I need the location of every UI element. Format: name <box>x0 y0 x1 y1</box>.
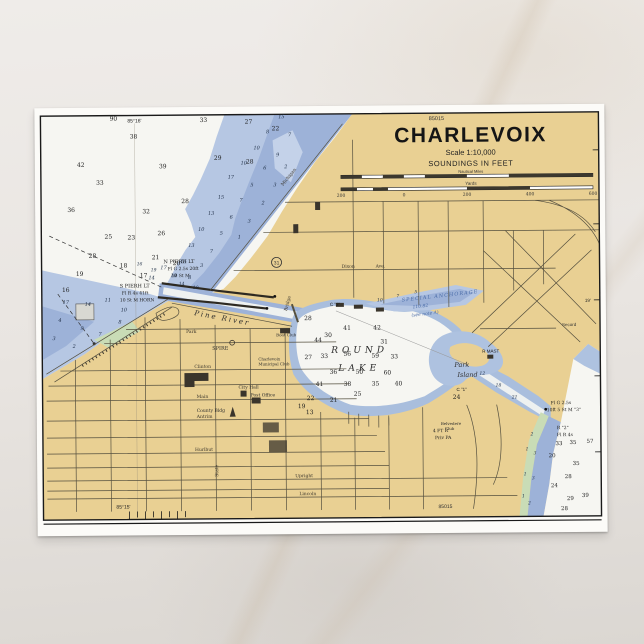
sounding-value: 16 <box>62 287 70 294</box>
sounding-value: 25 <box>354 391 362 398</box>
sounding-value: 2 <box>529 431 533 437</box>
street-state: State <box>214 464 220 476</box>
sounding-value: 33 <box>200 117 208 124</box>
sounding-value: 15 <box>278 114 284 120</box>
post-office-label: Post Office <box>251 392 276 398</box>
street-lincoln: Lincoln <box>299 491 316 497</box>
chart-number-top: 85015 <box>429 116 444 122</box>
street-dixon-ave: Ave. <box>375 263 386 269</box>
secord-label: Secord <box>562 322 577 327</box>
round-lake-label-1: ROUND <box>330 345 388 355</box>
miles-scalebar-label: Nautical Miles <box>458 169 483 174</box>
sounding-value: 36 <box>67 207 75 214</box>
sounding-value: 21 <box>330 397 338 404</box>
sounding-value: 10 <box>253 145 260 151</box>
sounding-value: 18 <box>496 383 502 389</box>
sounding-value: 22 <box>272 125 280 132</box>
park-island-label-2: Island <box>456 371 477 379</box>
sounding-value: 8 <box>118 320 121 326</box>
sounding-value: 16 <box>137 261 143 267</box>
svg-text:10ft 5 St M "3": 10ft 5 St M "3" <box>547 407 581 413</box>
sounding-value: 59 <box>371 353 379 360</box>
sounding-value: 41 <box>316 381 324 388</box>
belvedere-label-2: Club <box>445 426 455 431</box>
city-hall-label: City Hall <box>239 384 260 390</box>
sounding-value: 4 <box>57 318 61 324</box>
sounding-value: 11 <box>105 298 111 304</box>
sounding-value: 15 <box>218 195 224 201</box>
sounding-value: 33 <box>96 180 104 187</box>
sounding-value: 27 <box>304 354 312 361</box>
sounding-value: 28 <box>181 198 189 205</box>
svg-text:R "2": R "2" <box>557 425 569 431</box>
sounding-value: 60 <box>384 369 392 376</box>
product-photo-background: { "colors":{ "land":"#e9d093","water_lig… <box>0 0 644 644</box>
sounding-value: 15 <box>180 259 186 265</box>
spire-label: SPIRE <box>212 346 229 352</box>
municipal-label-2: Municipal Club <box>258 361 289 366</box>
street-main: Main <box>197 394 209 400</box>
sounding-value: 17 <box>160 265 167 271</box>
sounding-value: 39 <box>582 493 590 499</box>
svg-text:10 St M HORN: 10 St M HORN <box>120 297 155 303</box>
sounding-value: 21 <box>152 254 160 261</box>
svg-text:Fl R 4s 41ft: Fl R 4s 41ft <box>122 290 149 296</box>
sounding-value: 50 <box>356 369 364 376</box>
sounding-value: 33 <box>390 353 398 360</box>
sounding-value: 23 <box>128 234 136 241</box>
svg-text:200: 200 <box>337 193 346 199</box>
n-pier-light-icon <box>273 295 276 298</box>
sounding-value: 10 <box>377 298 383 304</box>
sounding-value: 1 <box>526 446 529 452</box>
sounding-value: 14 <box>148 275 154 281</box>
yards-scalebar-label: Yards <box>465 181 477 186</box>
sounding-value: 2 <box>72 344 76 350</box>
sounding-value: 10 <box>193 285 199 291</box>
street-park: Park <box>186 329 197 335</box>
sounding-value: 21 <box>511 394 518 400</box>
sounding-value: 3 <box>273 182 276 188</box>
longitude-bottom-label: 85°15' <box>116 505 130 511</box>
sounding-value: 13 <box>306 409 314 416</box>
sounding-value: 10 <box>241 161 248 167</box>
sounding-value: 32 <box>142 208 150 215</box>
svg-text:31: 31 <box>274 261 280 267</box>
svg-text:400: 400 <box>526 191 535 197</box>
sounding-value: 40 <box>395 380 403 387</box>
sounding-value: 35 <box>569 440 577 446</box>
sounding-value: 30 <box>324 332 332 339</box>
sounding-value: 5 <box>220 231 223 237</box>
can-buoy-3-label: C "3" <box>330 302 341 307</box>
sounding-value: 38 <box>130 133 138 140</box>
street-upright: Upright <box>295 473 313 479</box>
sounding-value: 3 <box>53 336 56 342</box>
street-hurlbut: Hurlbut <box>195 447 213 453</box>
longitude-top-label: 85°16' <box>127 118 141 124</box>
sounding-value: 39 <box>159 163 167 170</box>
sounding-value: 17 <box>228 175 235 181</box>
sounding-value: 13 <box>188 243 194 249</box>
sounding-value: 2 <box>260 200 264 206</box>
sounding-value: 33 <box>555 441 563 447</box>
nautical-chart: 85015 CHARLEVOIX Scale 1:10,000 SOUNDING… <box>34 104 607 536</box>
sounding-value: 19 <box>76 271 84 278</box>
sounding-value: 3 <box>534 450 537 456</box>
sounding-value: 10 <box>121 308 128 314</box>
sounding-value: 17 <box>140 272 148 279</box>
sounding-value: 3 <box>532 475 535 481</box>
sounding-value: 35 <box>573 461 581 467</box>
sounding-value: 14 <box>85 302 91 308</box>
sounding-value: 8 <box>266 129 269 135</box>
sounding-value: 38 <box>344 381 352 388</box>
svg-text:200: 200 <box>463 192 472 198</box>
sounding-value: 1 <box>238 235 241 241</box>
sounding-value: 35 <box>372 381 380 388</box>
sounding-value: 28 <box>246 159 254 166</box>
chart-title: CHARLEVOIX <box>394 123 547 147</box>
chart-scale: Scale 1:10,000 <box>446 148 496 157</box>
sounding-value: 22 <box>307 395 315 402</box>
sounding-value: 27 <box>245 119 253 126</box>
svg-text:Fl G 2.5s: Fl G 2.5s <box>551 400 572 406</box>
sounding-value: 42 <box>373 325 381 332</box>
r-mast-label: R MAST <box>482 349 499 354</box>
chart-border-outer <box>44 520 602 524</box>
sounding-value: 90 <box>110 116 118 123</box>
svg-text:600: 600 <box>589 191 598 197</box>
chart-number-bottom: 85015 <box>438 504 452 510</box>
svg-text:S PIERH LT: S PIERH LT <box>120 283 151 289</box>
street-antrim: Antrim <box>196 414 214 420</box>
sounding-value: 24 <box>453 394 461 401</box>
sounding-value: 29 <box>214 155 222 162</box>
sounding-value: 28 <box>565 474 573 480</box>
can-buoy-1-label: C "1" <box>457 387 468 392</box>
sounding-value: 2 <box>283 164 287 170</box>
sounding-value: 1 <box>522 493 525 499</box>
sounding-value: 25 <box>104 234 112 241</box>
sounding-value: 28 <box>304 315 312 322</box>
sounding-value: 36 <box>330 369 338 376</box>
latitude-right-label: 19' <box>585 298 591 303</box>
sounding-value: 44 <box>314 337 322 344</box>
sounding-value: 3 <box>200 263 203 269</box>
sounding-value: 2 <box>527 500 531 506</box>
sounding-value: 14 <box>179 281 185 287</box>
sounding-value: 1 <box>524 471 527 477</box>
sounding-value: 12 <box>480 371 486 377</box>
sounding-value: 10 <box>170 273 177 279</box>
sounding-value: 18 <box>120 263 128 270</box>
sounding-value: 28 <box>89 253 97 260</box>
sounding-value: 10 <box>198 227 205 233</box>
sounding-value: 57 <box>586 439 594 445</box>
sounding-value: 5 <box>414 289 417 295</box>
sounding-value: 13 <box>208 211 214 217</box>
sounding-value: 19 <box>298 403 306 410</box>
postcard: 85015 CHARLEVOIX Scale 1:10,000 SOUNDING… <box>34 104 607 536</box>
s-pier-light-icon <box>265 307 268 310</box>
svg-text:Priv PA: Priv PA <box>435 435 452 441</box>
sounding-value: 31 <box>380 338 388 345</box>
boat-club-label: Boat Club <box>276 332 297 337</box>
county-bldg-label: County Bldg <box>197 408 225 414</box>
sounding-value: 19 <box>151 267 157 273</box>
sounding-value: 3 <box>248 219 251 225</box>
sounding-value: 26 <box>157 230 165 237</box>
sounding-value: 28 <box>561 506 569 512</box>
sounding-value: 20 <box>549 453 557 459</box>
sounding-value: 5 <box>250 183 253 189</box>
sounding-value: 33 <box>320 353 328 360</box>
sounding-value: 42 <box>77 162 85 169</box>
svg-text:Fl R 4s: Fl R 4s <box>557 432 574 438</box>
sounding-value: 41 <box>343 325 351 332</box>
sounding-value: 7 <box>396 293 399 299</box>
chart-soundings-note: SOUNDINGS IN FEET <box>428 158 513 168</box>
street-clinton: Clinton <box>194 364 211 370</box>
park-island-label-1: Park <box>453 361 469 369</box>
svg-text:0: 0 <box>403 192 406 198</box>
street-dixon: Dixon <box>342 264 355 270</box>
sounding-value: 8 <box>188 275 191 281</box>
sounding-value: 24 <box>551 483 559 489</box>
sounding-value: 17 <box>63 300 70 306</box>
sounding-value: 56 <box>343 351 351 358</box>
sounding-value: 29 <box>567 496 575 502</box>
